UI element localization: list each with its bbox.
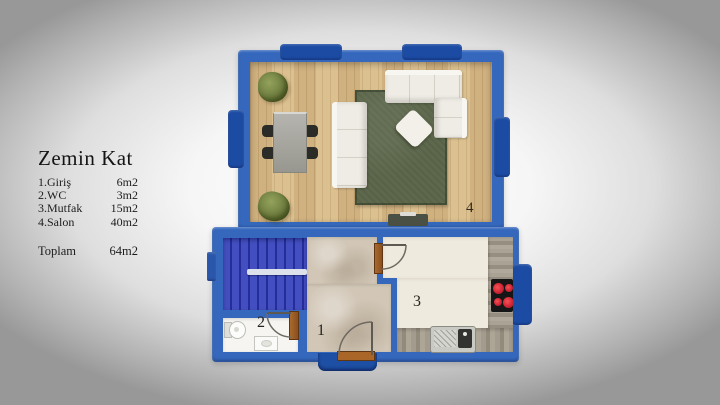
room-number-wc: 2	[257, 314, 265, 332]
tv-unit	[388, 214, 428, 226]
salon-window-top-right	[402, 44, 462, 60]
legend-row-mutfak: 3.Mutfak 15m2	[38, 202, 138, 215]
stair-window-left	[207, 252, 216, 281]
salon-window-top-left	[280, 44, 342, 60]
legend-label: 4.Salon	[38, 216, 74, 229]
entrance-hall-floor	[307, 237, 377, 284]
plant-top	[258, 72, 288, 102]
legend: Zemin Kat 1.Giriş 6m2 2.WC 3m2 3.Mutfak …	[38, 146, 138, 259]
legend-row-salon: 4.Salon 40m2	[38, 216, 138, 229]
burner-icon	[493, 283, 504, 294]
stair-handrail	[247, 269, 307, 275]
wc-sink	[254, 336, 278, 351]
salon-window-left	[228, 110, 244, 168]
sofa-section-left	[332, 102, 367, 188]
legend-label: 3.Mutfak	[38, 202, 82, 215]
burner-icon	[503, 297, 514, 308]
entry-threshold	[337, 351, 375, 361]
toilet-icon	[229, 321, 246, 339]
ground-rooms-walls: 1 2 3	[212, 227, 519, 362]
sink-drainboard	[434, 330, 456, 347]
kitchen-door-jamb	[374, 243, 383, 274]
page-title: Zemin Kat	[38, 146, 138, 171]
burner-icon	[494, 298, 502, 306]
legend-area: 15m2	[111, 202, 138, 215]
kitchen-window-right	[511, 264, 532, 325]
salon-window-right	[494, 117, 510, 177]
legend-total-row: Toplam 64m2	[38, 244, 138, 259]
sink-basin	[458, 329, 472, 348]
room-number-entrance: 1	[317, 322, 325, 340]
wc-door-jamb	[289, 311, 299, 340]
salon-floor	[250, 62, 492, 222]
floor-plan-page: Zemin Kat 1.Giriş 6m2 2.WC 3m2 3.Mutfak …	[0, 0, 720, 405]
plant-bottom	[255, 188, 293, 224]
salon-walls: 4	[238, 50, 504, 230]
cooktop-icon	[491, 279, 513, 312]
legend-area: 40m2	[111, 216, 138, 229]
dining-table	[273, 112, 307, 173]
entrance-hall-floor	[307, 284, 391, 352]
total-area: 64m2	[110, 244, 138, 259]
kitchen-sink	[430, 326, 476, 353]
total-label: Toplam	[38, 244, 76, 259]
room-number-salon: 4	[466, 200, 474, 217]
burner-icon	[505, 284, 513, 292]
sofa-section-corner	[434, 98, 467, 138]
legend-rows: 1.Giriş 6m2 2.WC 3m2 3.Mutfak 15m2 4.Sal…	[38, 176, 138, 229]
room-number-kitchen: 3	[413, 293, 421, 311]
